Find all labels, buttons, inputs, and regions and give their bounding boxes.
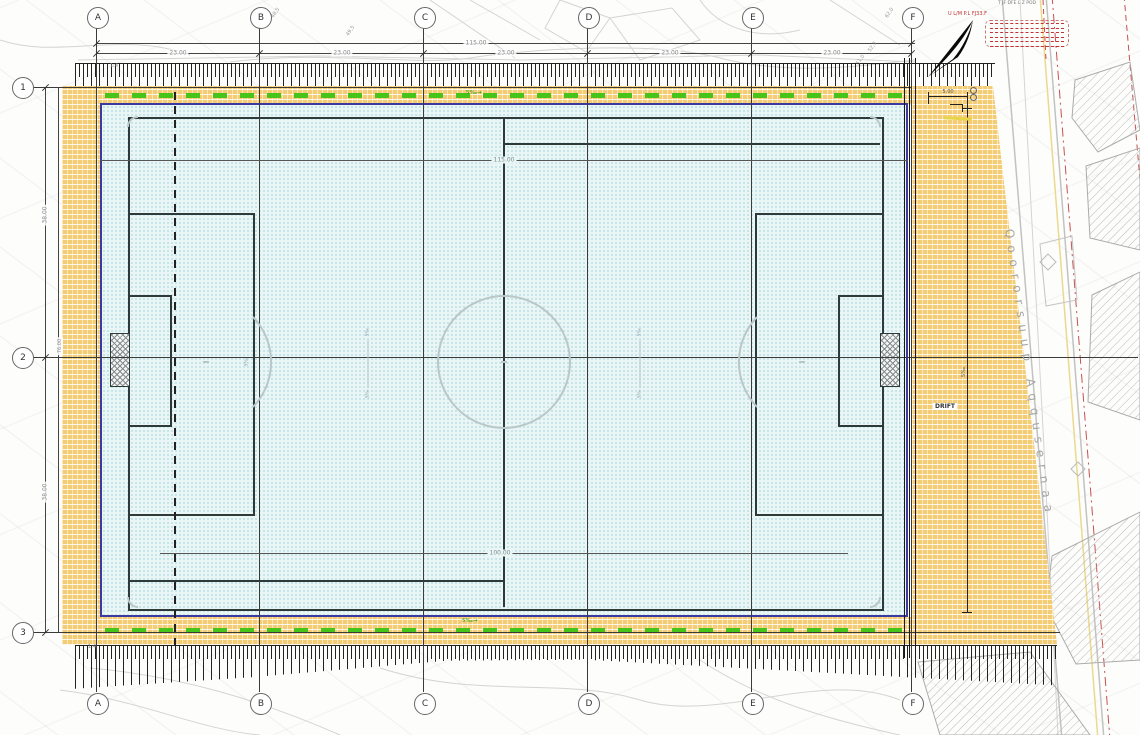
grid-label: 3 [20, 628, 26, 638]
dim-field-length: 115.00 [492, 157, 517, 164]
grid-label: F [910, 699, 915, 709]
wall-line-3 [915, 58, 916, 658]
dim-seg-cd: 23.00 [495, 50, 516, 57]
grid-bubble-E-top: E [742, 7, 764, 29]
embankment-slope-top: 1:4 [110, 63, 118, 69]
grid-line-F [911, 28, 912, 692]
grid-line-2 [33, 357, 1138, 358]
gravel-band-left [62, 86, 100, 645]
grid-bubble-F-top: F [902, 7, 924, 29]
field-slope-mark: 5‰ [366, 328, 371, 337]
dim-right-offset: 5.00 [940, 89, 955, 95]
grid-bubble-A-top: A [87, 7, 109, 29]
legend-row [990, 41, 1064, 47]
grid-label: C [422, 13, 428, 23]
grid-label: D [586, 13, 593, 23]
legend-row [990, 23, 1064, 29]
dim-seg-ef: 23.00 [821, 50, 842, 57]
light-pole-icon [970, 94, 977, 101]
wall-line-1 [904, 58, 905, 658]
field-slope-mark: 5‰ [638, 328, 643, 337]
grid-bubble-E-bottom: E [742, 693, 764, 715]
pitch-subdivision-top [504, 143, 880, 145]
grid-bubble-D-top: D [578, 7, 600, 29]
dim-pitch-length: 100.00 [488, 550, 513, 557]
goal-area-right [838, 295, 882, 427]
grid-label: E [750, 699, 756, 709]
field-slope-mark: 5‰ [366, 390, 371, 399]
grid-bubble-F-bottom: F [902, 693, 924, 715]
light-pole-icon [970, 87, 977, 94]
field-slope-mark: 5‰ [245, 358, 250, 367]
grid-line-A [96, 28, 97, 692]
grid-label: B [258, 13, 264, 23]
slope-note-top: 5‰→ [466, 90, 482, 96]
grid-bubble-2: 2 [12, 347, 34, 369]
legend-title: U L/M P.L FJ33.F [948, 11, 987, 17]
legend-box [985, 20, 1069, 47]
grid-label: 1 [20, 83, 26, 93]
drift-label: DRIFT [933, 403, 957, 410]
dim-left-23: 38.00 [42, 481, 49, 502]
grid-label: C [422, 699, 428, 709]
slope-note-bottom: 5‰→ [462, 618, 478, 624]
pitch-center-line [503, 117, 505, 607]
grid-label: 2 [20, 353, 26, 363]
dim-seg-de: 23.00 [659, 50, 680, 57]
setting-out-dashed-line [174, 92, 176, 648]
grid-line-B [259, 28, 260, 692]
grid-bubble-B-top: B [250, 7, 272, 29]
grid-line-D [587, 28, 588, 692]
grid-bubble-C-bottom: C [414, 693, 436, 715]
grid-line-E [751, 28, 752, 692]
grid-bubble-A-bottom: A [87, 693, 109, 715]
field-slope-mark: 5‰ [638, 390, 643, 399]
grid-label: D [586, 699, 593, 709]
grid-bubble-1: 1 [12, 77, 34, 99]
grid-line-1 [33, 87, 912, 88]
goal-area-left [128, 295, 172, 427]
dim-line-right-offset [928, 96, 967, 97]
grid-label: B [258, 699, 264, 709]
goal-right [880, 333, 900, 387]
grid-label: F [910, 13, 915, 23]
dim-seg-bc: 23.00 [331, 50, 352, 57]
grid-label: A [95, 699, 101, 709]
dim-line-left-segments [45, 87, 46, 632]
grid-bubble-C-top: C [414, 7, 436, 29]
goal-left [110, 333, 130, 387]
grid-label: A [95, 13, 101, 23]
grid-bubble-3: 3 [12, 622, 34, 644]
dim-line-right-area [967, 108, 968, 612]
grid-bubble-D-bottom: D [578, 693, 600, 715]
right-area-slope-label: 5‰ [961, 367, 967, 377]
dim-line-left-overall [58, 87, 59, 632]
dim-left-overall: 76.00 [57, 337, 63, 355]
embankment-slope-bottom: 1:4 [88, 644, 96, 650]
grid-line-C [423, 28, 424, 692]
dim-line-top-overall [97, 43, 915, 44]
site-plan-drawing: 115.00 23.00 23.00 23.00 23.00 23.00 38.… [0, 0, 1140, 735]
wall-line-2 [909, 58, 910, 658]
grid-bubble-B-bottom: B [250, 693, 272, 715]
pitch-subdivision-bottom [128, 580, 504, 582]
drain-line-top [105, 93, 905, 98]
grid-label: E [750, 13, 756, 23]
legend-row [990, 32, 1064, 38]
legend-note: T JF DFE L Z POD [998, 1, 1036, 6]
grid-line-3 [33, 632, 1060, 633]
dim-seg-ab: 23.00 [167, 50, 188, 57]
dim-left-12: 38.00 [42, 204, 49, 225]
dim-top-overall: 115.00 [464, 40, 489, 47]
